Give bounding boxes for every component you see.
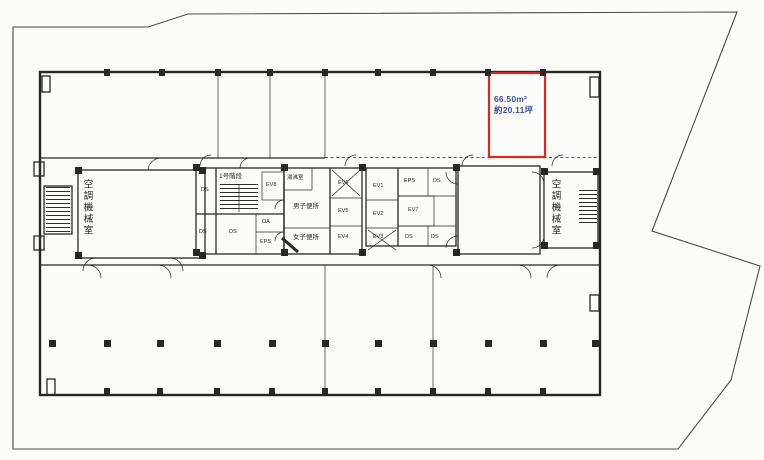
lower-floor bbox=[40, 265, 600, 395]
core-open-room bbox=[446, 166, 540, 254]
right-exterior-stair-hatch bbox=[579, 190, 597, 226]
left-exterior-stair-hatch bbox=[46, 187, 70, 233]
highlight-area-tsubo: 約20.11坪 bbox=[494, 106, 533, 115]
ev5-label: EV5 bbox=[338, 209, 348, 215]
oa-label: OA bbox=[262, 220, 270, 226]
ds-label-3: DS bbox=[229, 230, 237, 236]
left-machine-room-label: 空調機械室 bbox=[82, 179, 92, 251]
ds-label-2: DS bbox=[199, 230, 207, 236]
stair1-label: 1号階段 bbox=[219, 174, 242, 181]
womens-toilet-label: 女子便所 bbox=[293, 235, 319, 242]
eps-label-2: EPS bbox=[404, 179, 415, 185]
highlighted-unit bbox=[489, 73, 545, 157]
right-machine-room-label: 空調機械室 bbox=[550, 179, 560, 243]
stair1-treads-hatch bbox=[220, 184, 258, 212]
ev6-label: EV6 bbox=[338, 181, 348, 187]
ev2-label: EV2 bbox=[373, 212, 383, 218]
ev1-label: EV1 bbox=[373, 184, 383, 190]
floor-plan-scan: 66.50m² 約20.11坪 空調機械室 空調機械室 1号階段 EV8 DS … bbox=[0, 0, 764, 460]
ev8-label: EV8 bbox=[266, 183, 276, 189]
kitchenette-label: 湯沸室 bbox=[287, 176, 304, 182]
floor-plan-drawing bbox=[0, 0, 764, 460]
ds-label-5: DS bbox=[405, 235, 413, 241]
ds-label-6: DS bbox=[431, 235, 439, 241]
ev3-label: EV3 bbox=[373, 235, 383, 241]
ds-label-4: DS bbox=[433, 179, 441, 185]
top-band bbox=[40, 72, 600, 158]
column-grid bbox=[49, 69, 600, 395]
site-boundary bbox=[13, 12, 760, 449]
ds-label-1: DS bbox=[201, 188, 209, 194]
mens-toilet-label: 男子便所 bbox=[293, 204, 319, 211]
highlight-area-sqm: 66.50m² bbox=[494, 95, 527, 104]
ev7-label: EV7 bbox=[408, 208, 418, 214]
ev4-label: EV4 bbox=[338, 235, 348, 241]
eps-label-1: EPS bbox=[260, 240, 271, 246]
